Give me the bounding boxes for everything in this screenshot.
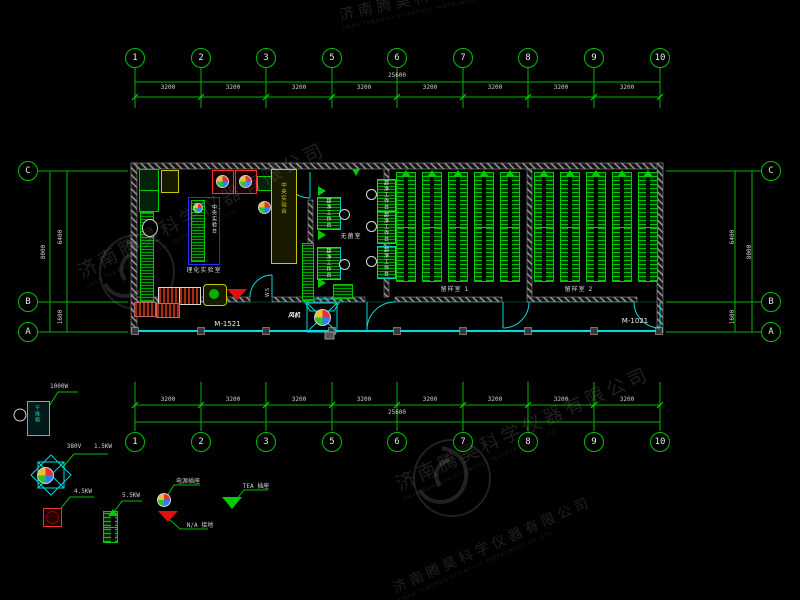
equipment-dial-icon	[258, 201, 271, 214]
axis-col-5-bottom: 5	[322, 432, 342, 452]
equipment-dial-icon	[193, 203, 203, 213]
axis-col-9-top: 9	[584, 48, 604, 68]
dim-bay-top-1: 3200	[148, 84, 188, 91]
dim-right-total: 8000	[746, 237, 754, 267]
dim-left-lower: 1600	[57, 302, 65, 332]
radiator-icon	[134, 302, 156, 317]
axis-col-9-bottom: 9	[584, 432, 604, 452]
clean-bench-label: 超净工作台	[383, 212, 390, 242]
sink-fixture-icon	[139, 169, 159, 191]
clean-bench: 超净工作台	[377, 211, 396, 244]
legend-ground-symbol	[158, 511, 178, 522]
legend-tea-label: TEA 插座	[236, 481, 276, 490]
small-equipment-icon	[257, 176, 272, 191]
dim-bay-bot-7: 3200	[541, 396, 581, 403]
clean-bench-label: 超净工作台	[326, 248, 333, 278]
legend-fan-volt: 380V	[62, 443, 86, 450]
radiator-icon	[156, 303, 180, 318]
room-label-left-lab: 理化实验室	[178, 265, 230, 274]
clean-bench-label: 超净工作台	[383, 247, 390, 277]
axis-col-8-top: 8	[518, 48, 538, 68]
dim-left-total: 8000	[40, 237, 48, 267]
dim-bay-top-2: 3200	[213, 84, 253, 91]
dim-bay-top-5: 3200	[410, 84, 450, 91]
dim-bay-top-3: 3200	[279, 84, 319, 91]
basin-icon	[142, 219, 158, 237]
axis-col-6-top: 6	[387, 48, 407, 68]
stool-icon	[366, 256, 377, 267]
stool-icon	[339, 209, 350, 220]
legend-socket-symbol	[157, 493, 171, 507]
room-label-sample2: 留样室 2	[556, 284, 602, 293]
axis-col-7-top: 7	[453, 48, 473, 68]
clean-bench: 超净工作台	[377, 246, 396, 279]
axis-row-b-left: B	[18, 292, 38, 312]
storage-rack	[534, 172, 554, 282]
axis-col-2-top: 2	[191, 48, 211, 68]
storage-rack	[448, 172, 468, 282]
ws-label: WS	[264, 282, 272, 302]
dim-total-bottom: 25600	[377, 409, 417, 416]
legend-fan-power: 1.5KW	[88, 443, 118, 450]
central-bench-label: 中央实验台	[211, 204, 218, 234]
dim-bay-top-7: 3200	[541, 84, 581, 91]
dim-bay-bot-6: 3200	[475, 396, 515, 403]
legend-rack-symbol	[103, 511, 118, 543]
dim-bay-bot-8: 3200	[607, 396, 647, 403]
equipment-dial-icon	[239, 175, 252, 188]
axis-row-c-right: C	[761, 161, 781, 181]
fume-hood-icon	[161, 170, 179, 193]
chair-seat	[209, 289, 219, 299]
bottom-wall	[131, 302, 663, 335]
clean-bench: 超净工作台	[317, 247, 341, 280]
axis-col-10-bottom: 10	[650, 432, 670, 452]
equipment-dial-icon	[216, 175, 229, 188]
storage-rack	[560, 172, 580, 282]
dim-bay-top-8: 3200	[607, 84, 647, 91]
room-label-sample1: 留样室 1	[432, 284, 478, 293]
legend-oven-symbol: 干燥箱	[27, 401, 50, 436]
axis-row-b-right: B	[761, 292, 781, 312]
wall-bench	[302, 243, 314, 301]
dim-left-upper: 6400	[57, 222, 65, 252]
stool-icon	[366, 189, 377, 200]
storage-rack	[638, 172, 658, 282]
axis-col-2-bottom: 2	[191, 432, 211, 452]
axis-col-10-top: 10	[650, 48, 670, 68]
legend-rack-power: 5.5KW	[116, 492, 146, 499]
storage-rack	[586, 172, 606, 282]
dim-bay-bot-3: 3200	[279, 396, 319, 403]
dim-bay-bot-2: 3200	[213, 396, 253, 403]
dim-right-upper: 6400	[729, 222, 737, 252]
stool-icon	[366, 221, 377, 232]
clean-bench-label: 超净工作台	[326, 198, 333, 228]
axis-col-3-bottom: 3	[256, 432, 276, 452]
wall-bench	[333, 284, 353, 299]
axis-row-a-right: A	[761, 322, 781, 342]
legend-heater-power: 4.5KW	[68, 488, 98, 495]
central-bench-2-label: 中央实验台	[279, 182, 287, 215]
central-bench-2: 中央实验台	[271, 169, 297, 264]
axis-col-3-top: 3	[256, 48, 276, 68]
dim-bay-bot-1: 3200	[148, 396, 188, 403]
heater-coil	[46, 511, 59, 524]
drawing-linework	[0, 0, 800, 600]
legend-fan-symbol	[37, 467, 54, 484]
clean-bench: 超净工作台	[317, 197, 341, 230]
door-label-left: M-1521	[200, 320, 255, 328]
storage-rack	[396, 172, 416, 282]
dim-total-top: 25600	[377, 72, 417, 79]
fan-impeller-icon	[314, 309, 331, 326]
clean-bench: 超净工作台	[377, 179, 396, 212]
legend-socket-label: 电源插座	[170, 476, 206, 485]
room-label-middle: 无菌室	[336, 231, 366, 240]
legend-ground-label: N/A 接地	[180, 520, 220, 529]
sink-fixture-icon	[139, 190, 159, 212]
axis-col-1-bottom: 1	[125, 432, 145, 452]
axis-col-6-bottom: 6	[387, 432, 407, 452]
cad-floor-plan-canvas: 1 2 3 5 6 7 8 9 10 1 2 3 5 6 7 8 9 10 C …	[0, 0, 800, 600]
radiator-icon	[179, 287, 201, 305]
stool-icon	[339, 259, 350, 270]
door-label-right: M-1021	[610, 317, 660, 325]
axis-col-8-bottom: 8	[518, 432, 538, 452]
dim-bay-top-6: 3200	[475, 84, 515, 91]
fan-label: 风机	[288, 310, 300, 319]
storage-rack	[422, 172, 442, 282]
dim-bay-bot-5: 3200	[410, 396, 450, 403]
axis-row-c-left: C	[18, 161, 38, 181]
axis-col-7-bottom: 7	[453, 432, 473, 452]
floor-drain-icon	[227, 289, 247, 300]
dim-bay-bot-4: 3200	[344, 396, 384, 403]
legend-heater-symbol	[43, 508, 62, 527]
dim-right-lower: 1600	[729, 302, 737, 332]
storage-rack	[500, 172, 520, 282]
axis-row-a-left: A	[18, 322, 38, 342]
legend-tea-symbol	[222, 497, 242, 509]
chair-icon	[203, 284, 227, 306]
legend-oven-power: 1000W	[50, 383, 80, 390]
axis-col-5-top: 5	[322, 48, 342, 68]
legend-oven-text: 干燥箱	[34, 405, 41, 423]
dim-bay-top-4: 3200	[344, 84, 384, 91]
axis-col-1-top: 1	[125, 48, 145, 68]
clean-bench-label: 超净工作台	[383, 180, 390, 210]
storage-rack	[612, 172, 632, 282]
storage-rack	[474, 172, 494, 282]
